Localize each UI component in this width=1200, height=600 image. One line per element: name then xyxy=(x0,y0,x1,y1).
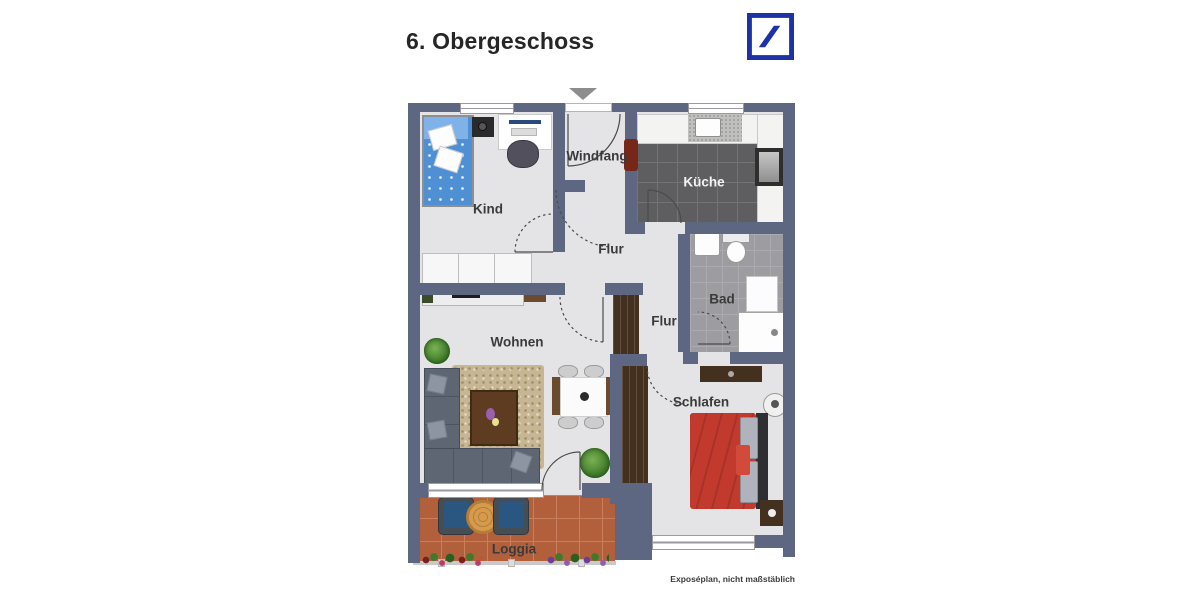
room-label-wohnen: Wohnen xyxy=(491,335,544,350)
room-label-bad: Bad xyxy=(709,292,735,307)
wall xyxy=(408,103,420,563)
room-label-kueche: Küche xyxy=(683,175,724,190)
bathroom-cabinet xyxy=(746,276,778,312)
plant xyxy=(424,338,450,364)
sofa-pillow xyxy=(426,373,447,394)
toilet-bowl xyxy=(726,241,746,263)
entrance-door-opening xyxy=(565,103,612,112)
monitor xyxy=(509,120,541,124)
dresser-kind xyxy=(422,253,532,285)
dresser-divider xyxy=(458,254,459,284)
nightstand xyxy=(760,500,784,526)
dresser-divider xyxy=(494,254,495,284)
pillow xyxy=(433,146,463,174)
wall xyxy=(625,222,645,234)
wall xyxy=(730,352,795,364)
wall xyxy=(553,180,585,192)
hall-wardrobe xyxy=(613,292,639,354)
dresser-knob xyxy=(728,371,734,377)
bathroom-sink xyxy=(694,232,720,256)
nightstand xyxy=(472,117,494,137)
wall xyxy=(685,222,795,234)
kids-bed xyxy=(422,115,474,207)
stove xyxy=(755,148,783,186)
flower-box xyxy=(545,552,609,569)
sofa-pillow xyxy=(427,420,448,441)
window xyxy=(688,103,744,114)
room-label-flur-2: Flur xyxy=(651,314,677,329)
room-label-windfang: Windfang xyxy=(566,149,627,164)
window xyxy=(652,535,755,550)
desk-chair xyxy=(507,140,539,168)
dining-chair xyxy=(584,416,604,429)
dining-chair xyxy=(558,416,578,429)
room-label-flur-1: Flur xyxy=(598,242,624,257)
floor-plan: Kind Windfang Küche Flur Bad Flur Wohnen… xyxy=(408,103,795,570)
window xyxy=(428,483,544,498)
deutsche-bank-logo-icon xyxy=(747,13,794,60)
bedroom-dresser xyxy=(700,366,762,382)
wall xyxy=(408,283,565,295)
room-label-schlafen: Schlafen xyxy=(673,395,729,410)
wall xyxy=(582,483,615,498)
room-label-loggia: Loggia xyxy=(492,542,536,557)
loggia-chair xyxy=(493,497,529,535)
entrance-marker-icon xyxy=(569,88,597,100)
wall xyxy=(678,234,690,352)
wall xyxy=(783,103,795,557)
window xyxy=(460,103,514,114)
sink-basin xyxy=(695,118,721,137)
lamp xyxy=(478,122,487,131)
page-title: 6. Obergeschoss xyxy=(406,28,594,55)
keyboard xyxy=(511,128,537,136)
wall xyxy=(605,283,643,295)
shower xyxy=(738,312,785,354)
coffee-table xyxy=(470,390,518,446)
table-decor xyxy=(580,392,589,401)
plan-disclaimer: Exposéplan, nicht maßstäblich xyxy=(670,574,795,584)
stove-top xyxy=(759,152,779,182)
wall xyxy=(610,354,622,504)
wall xyxy=(683,352,698,364)
plant xyxy=(580,448,610,478)
railing-post xyxy=(508,559,515,567)
bed-throw xyxy=(736,445,750,475)
wall xyxy=(625,112,637,234)
room-label-kind: Kind xyxy=(473,202,503,217)
flower-decor xyxy=(492,418,499,426)
wall xyxy=(615,483,652,560)
flower-box xyxy=(420,552,482,569)
kitchen-sink-counter xyxy=(688,114,742,142)
dining-table-end xyxy=(552,377,560,415)
shower-drain xyxy=(771,329,778,336)
floor-plan-page: 6. Obergeschoss xyxy=(0,0,1200,600)
dining-table xyxy=(560,377,608,417)
